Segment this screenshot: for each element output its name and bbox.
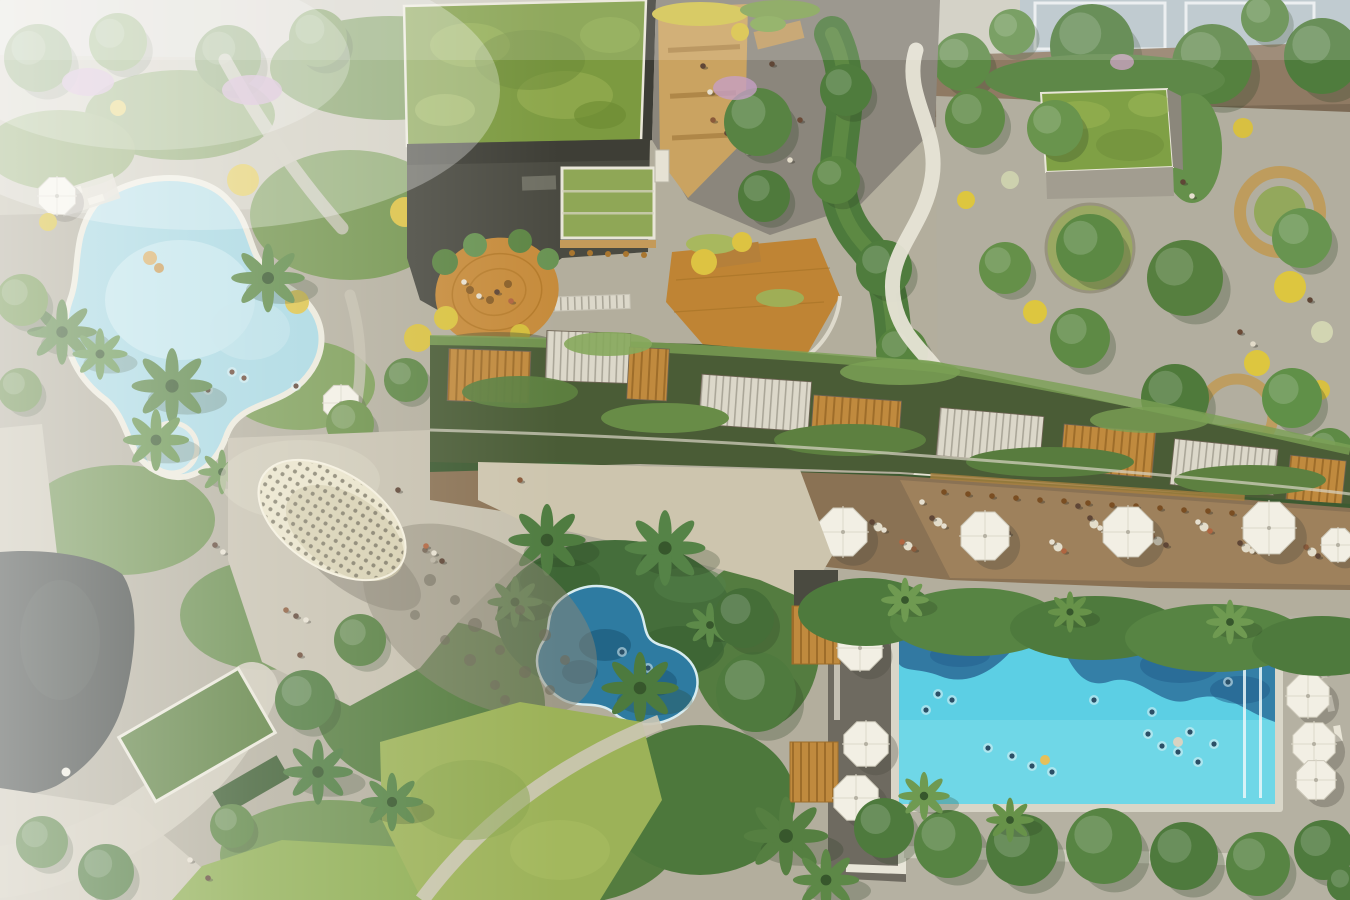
terrace-hedge (564, 332, 652, 356)
swimmer (947, 695, 957, 705)
lap-pool-light (899, 720, 1275, 804)
terrace-hedge (1090, 407, 1210, 433)
swimmer (983, 743, 993, 753)
swimmer (617, 647, 627, 657)
flowering-shrub-white (1001, 171, 1019, 189)
deck-planter-top (756, 289, 804, 307)
flowering-shrub-yellow (691, 249, 717, 275)
lane-line (1259, 648, 1262, 798)
louver-panel-wood (627, 347, 670, 401)
swimmer (1089, 695, 1099, 705)
flowering-shrub-yellow (1233, 118, 1253, 138)
swimmer (1143, 729, 1153, 739)
scene-canvas (0, 0, 1350, 900)
roof-grass-mottle (574, 101, 626, 129)
pergola-beam (562, 212, 654, 215)
terrace-hedge (601, 403, 729, 433)
pergola-trellis (562, 168, 654, 238)
garden-pavilion-wall (1046, 167, 1174, 199)
terrace-hedge (840, 359, 960, 385)
lane-line (1243, 648, 1246, 798)
swimmer (1047, 767, 1057, 777)
flowering-shrub-white (1311, 321, 1333, 343)
swimmer (933, 689, 943, 699)
swimmer (1157, 741, 1167, 751)
terrace-hedge (1174, 465, 1326, 495)
swimmer (1173, 747, 1183, 757)
swimmer (1193, 757, 1203, 767)
roof-grass-mottle (1096, 129, 1164, 161)
flowering-shrub-yellow (1274, 271, 1306, 303)
flowering-shrub-yellow (1244, 350, 1270, 376)
bar-stool (569, 250, 575, 256)
flowering-shrub-yellow (1023, 300, 1047, 324)
kiosk (655, 150, 669, 182)
swimmer (1007, 751, 1017, 761)
bar-stool (641, 252, 647, 258)
aerial-resort-rendering (0, 0, 1350, 900)
bar-stool (587, 250, 593, 256)
flowering-shrub-yellow (732, 232, 752, 252)
bar-stool (605, 251, 611, 257)
flowering-shrub-pink (713, 76, 757, 100)
swimmer (1223, 677, 1233, 687)
wood-plank-deck (790, 742, 838, 802)
swimmer (921, 705, 931, 715)
swimmer (1209, 739, 1219, 749)
swimmer (1185, 727, 1195, 737)
swimmer (1027, 761, 1037, 771)
deck-planter-top (686, 234, 738, 254)
swimmer (1147, 707, 1157, 717)
flowering-shrub-yellow (957, 191, 975, 209)
roof-grass-mottle (1128, 93, 1172, 117)
pool-float (1173, 737, 1183, 747)
shadow-dapple (560, 655, 570, 665)
bar-counter (560, 240, 656, 248)
pergola-beam (562, 190, 654, 193)
pool-float (1040, 755, 1050, 765)
atmosphere-light (0, 0, 1350, 60)
bar-stool (623, 251, 629, 257)
